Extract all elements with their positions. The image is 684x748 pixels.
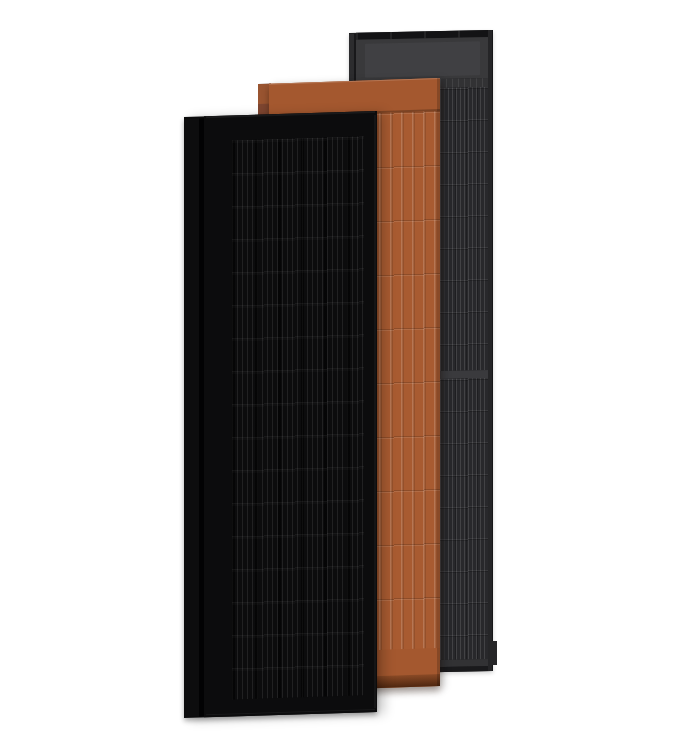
product-image-canvas bbox=[0, 0, 684, 748]
panel-body bbox=[204, 111, 377, 717]
panel-right-edge bbox=[374, 115, 376, 708]
panel-right-edge bbox=[488, 30, 493, 671]
panel-corner-notch bbox=[490, 641, 497, 665]
panel-right-edge bbox=[437, 78, 440, 686]
panel-header-plate bbox=[356, 37, 489, 81]
solar-panel-black bbox=[184, 111, 377, 718]
panel-bottom-edge-highlight bbox=[206, 709, 375, 715]
panel-cell-grid bbox=[232, 136, 364, 699]
panel-left-rail bbox=[184, 118, 204, 717]
